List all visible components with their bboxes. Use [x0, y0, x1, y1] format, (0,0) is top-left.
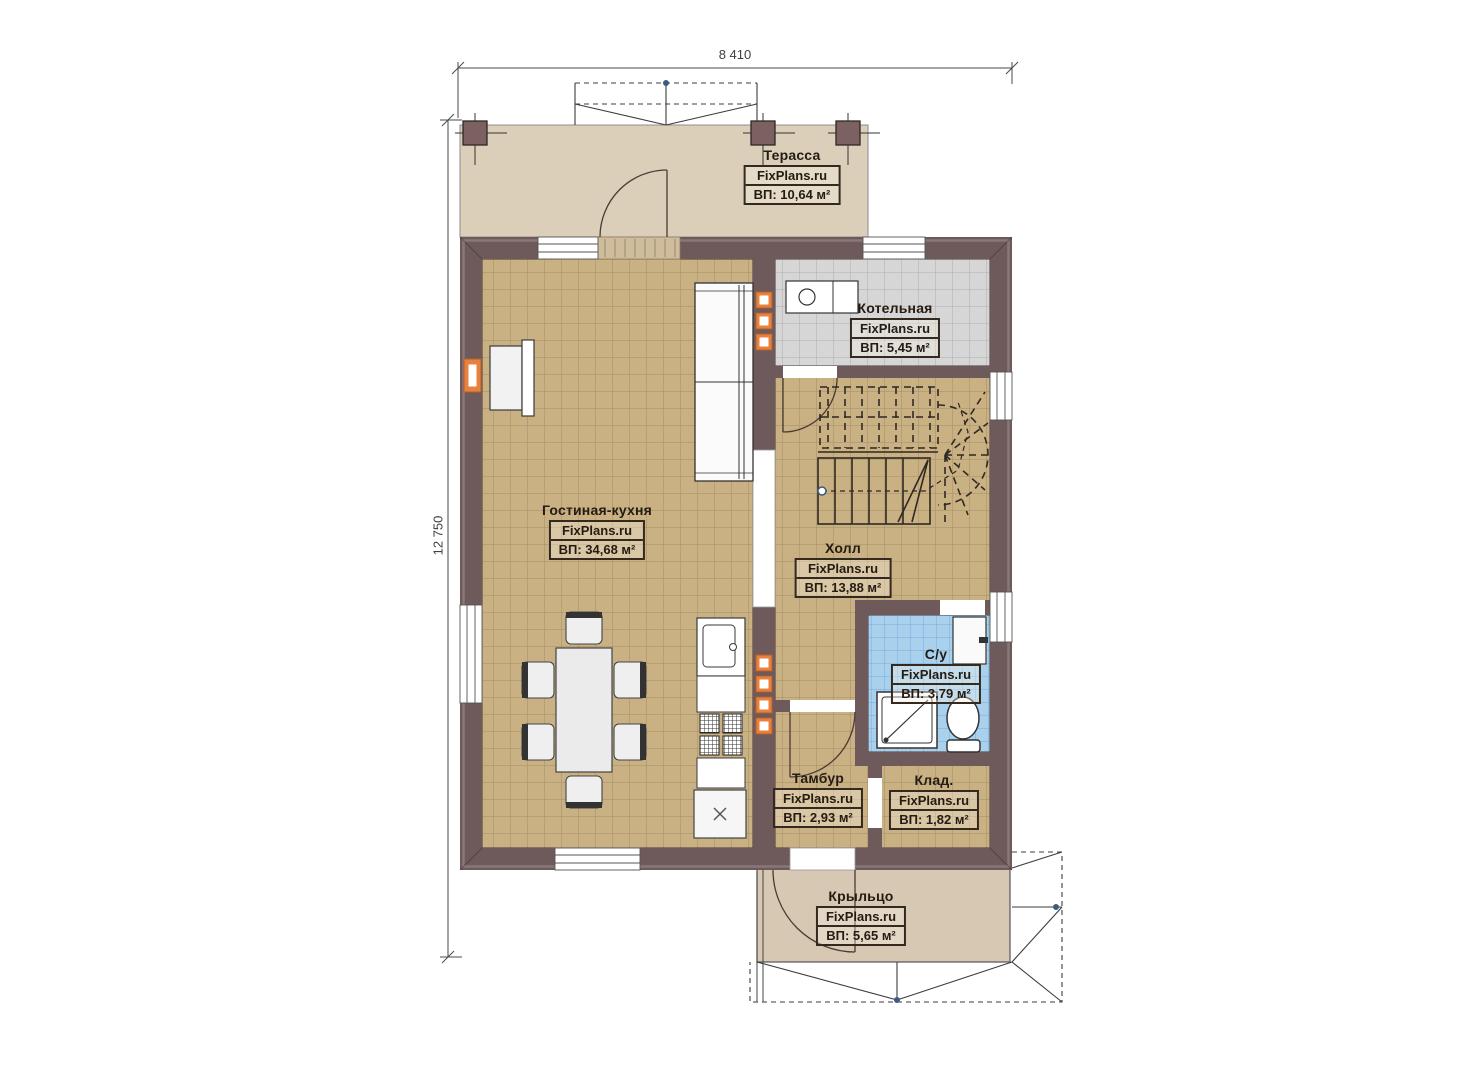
room-name: С/у — [891, 646, 981, 662]
boiler-unit — [786, 281, 858, 313]
wardrobe — [695, 283, 753, 481]
room-label-boiler: Котельная FixPlans.ru ВП: 5,45 м² — [850, 300, 940, 358]
window-boiler-top — [863, 237, 925, 259]
brand-watermark: FixPlans.ru — [818, 908, 904, 925]
room-label-living: Гостиная-кухня FixPlans.ru ВП: 34,68 м² — [542, 502, 652, 560]
room-name: Котельная — [850, 300, 940, 316]
room-name: Терасса — [744, 147, 841, 163]
room-info-box: FixPlans.ru ВП: 2,93 м² — [773, 788, 863, 828]
room-label-porch: Крыльцо FixPlans.ru ВП: 5,65 м² — [816, 888, 906, 946]
window-living-top — [538, 237, 598, 259]
room-info-box: FixPlans.ru ВП: 1,82 м² — [889, 790, 979, 830]
toilet — [947, 697, 980, 752]
room-area: ВП: 10,64 м² — [746, 184, 839, 203]
room-name: Гостиная-кухня — [542, 502, 652, 518]
floor-plan-canvas: Терасса FixPlans.ru ВП: 10,64 м² Котельн… — [0, 0, 1473, 1080]
room-area: ВП: 2,93 м² — [775, 807, 861, 826]
window-hall-right — [990, 372, 1012, 420]
room-area: ВП: 34,68 м² — [551, 539, 644, 558]
room-label-bathroom: С/у FixPlans.ru ВП: 3,79 м² — [891, 646, 981, 704]
brand-watermark: FixPlans.ru — [891, 792, 977, 809]
wall-outlet-icon — [464, 359, 481, 392]
brand-watermark: FixPlans.ru — [893, 666, 979, 683]
room-name: Клад. — [889, 772, 979, 788]
window-living-bottom — [555, 848, 640, 870]
room-info-box: FixPlans.ru ВП: 3,79 м² — [891, 664, 981, 704]
room-info-box: FixPlans.ru ВП: 5,65 м² — [816, 906, 906, 946]
brand-watermark: FixPlans.ru — [551, 522, 644, 539]
brand-watermark: FixPlans.ru — [775, 790, 861, 807]
brand-watermark: FixPlans.ru — [797, 560, 890, 577]
floor-plan-svg — [0, 0, 1473, 1080]
room-area: ВП: 5,45 м² — [852, 337, 938, 356]
room-area: ВП: 1,82 м² — [891, 809, 977, 828]
appliance-dishwasher — [694, 790, 746, 838]
window-bathroom-right — [990, 592, 1012, 642]
dimension-width-label: 8 410 — [695, 47, 775, 62]
room-area: ВП: 13,88 м² — [797, 577, 890, 596]
room-info-box: FixPlans.ru ВП: 34,68 м² — [549, 520, 646, 560]
room-label-hall: Холл FixPlans.ru ВП: 13,88 м² — [795, 540, 892, 598]
window-living-left — [460, 605, 482, 703]
brand-watermark: FixPlans.ru — [852, 320, 938, 337]
room-info-box: FixPlans.ru ВП: 10,64 м² — [744, 165, 841, 205]
room-info-box: FixPlans.ru ВП: 5,45 м² — [850, 318, 940, 358]
room-name: Тамбур — [773, 770, 863, 786]
room-area: ВП: 3,79 м² — [893, 683, 979, 702]
room-name: Холл — [795, 540, 892, 556]
room-name: Крыльцо — [816, 888, 906, 904]
terrace-awning — [575, 80, 757, 125]
room-label-terrace: Терасса FixPlans.ru ВП: 10,64 м² — [744, 147, 841, 205]
dimension-height-label: 12 750 — [431, 496, 446, 576]
room-info-box: FixPlans.ru ВП: 13,88 м² — [795, 558, 892, 598]
room-area: ВП: 5,65 м² — [818, 925, 904, 944]
tv-unit — [490, 340, 534, 416]
brand-watermark: FixPlans.ru — [746, 167, 839, 184]
room-label-vestibule: Тамбур FixPlans.ru ВП: 2,93 м² — [773, 770, 863, 828]
room-label-storage: Клад. FixPlans.ru ВП: 1,82 м² — [889, 772, 979, 830]
